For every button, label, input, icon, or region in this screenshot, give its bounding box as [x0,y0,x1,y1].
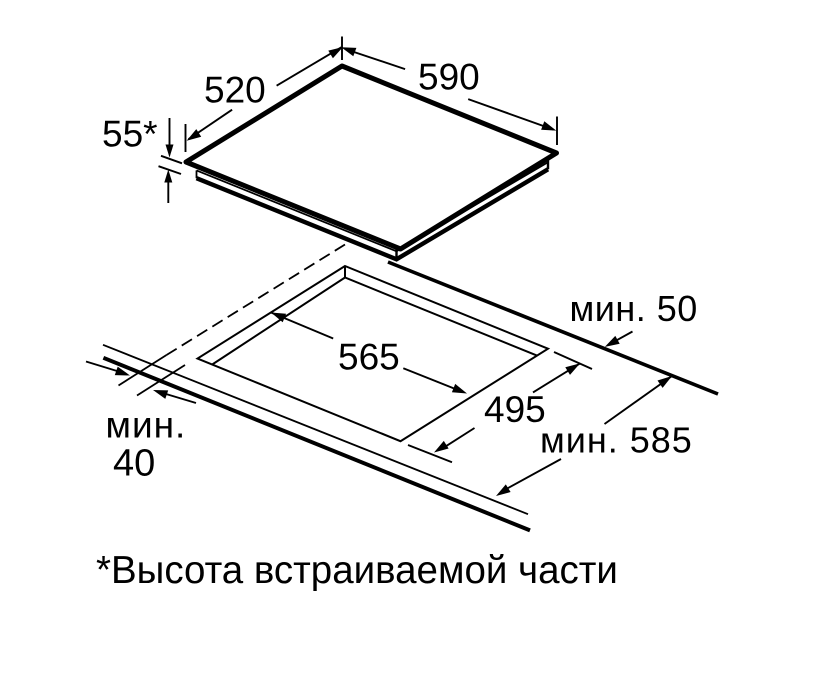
svg-text:мин.: мин. [106,404,187,445]
svg-text:55*: 55* [102,114,158,155]
svg-text:мин. 50: мин. 50 [570,288,698,329]
svg-text:495: 495 [484,389,546,430]
svg-text:40: 40 [113,442,155,484]
svg-text:*Высота встраиваемой части: *Высота встраиваемой части [96,549,618,592]
svg-text:590: 590 [418,57,480,98]
svg-text:520: 520 [204,70,266,111]
svg-text:565: 565 [338,337,400,378]
svg-text:мин. 585: мин. 585 [540,420,693,461]
